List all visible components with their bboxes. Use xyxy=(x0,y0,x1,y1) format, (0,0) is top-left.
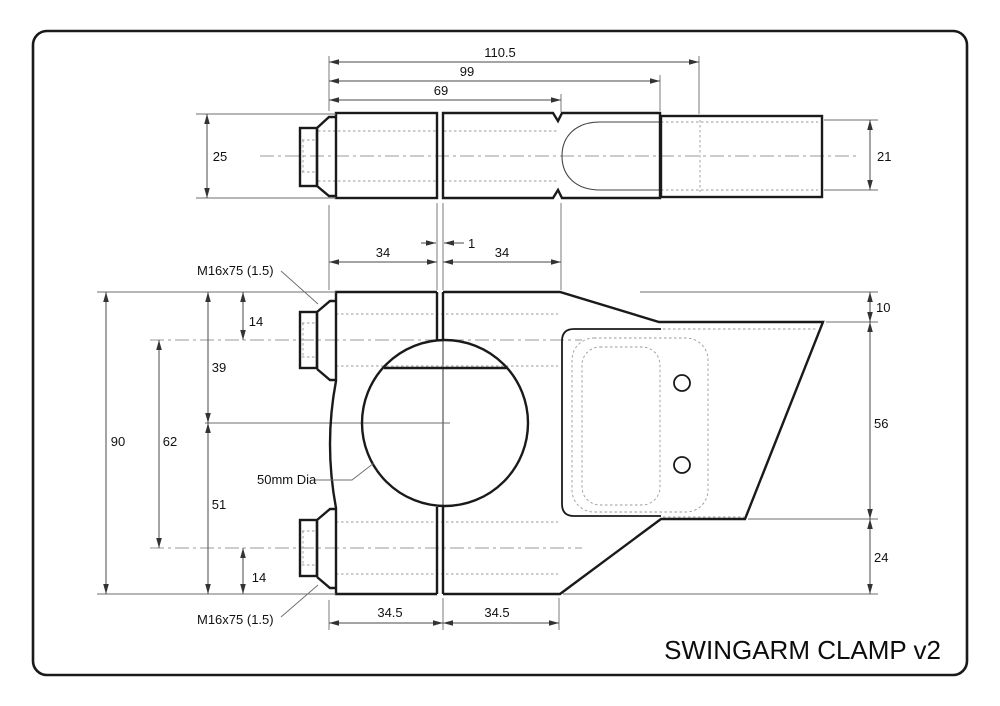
leader-bolt-spec-bottom xyxy=(281,585,318,617)
bracket-hidden-pocket-inner xyxy=(582,347,660,505)
dim-overall-length: 110.5 xyxy=(484,45,516,60)
dim-left-half-width: 34.5 xyxy=(377,605,402,620)
drawing-frame xyxy=(33,31,967,675)
dim-right-half: 34 xyxy=(495,245,509,260)
front-view xyxy=(150,292,823,594)
clamp-left-half-front-view xyxy=(330,292,437,594)
clamp-right-half-front-view xyxy=(443,292,823,594)
dim-bracket-top-offset: 10 xyxy=(876,300,890,315)
clamp-left-half-top-view xyxy=(336,113,437,198)
dimension-text: 110.5 99 69 25 21 34 34 1 90 62 39 51 14… xyxy=(111,45,892,627)
bracket-plate xyxy=(562,329,661,516)
dim-shaft-diameter: 21 xyxy=(877,149,891,164)
dim-body-width: 25 xyxy=(213,149,227,164)
dim-left-half: 34 xyxy=(376,245,390,260)
label-bore-diameter: 50mm Dia xyxy=(257,472,317,487)
bracket-hole-upper xyxy=(674,375,690,391)
shaft-outline xyxy=(661,116,822,197)
dim-center-to-bottom: 51 xyxy=(212,497,226,512)
dim-top-to-bolt: 14 xyxy=(249,314,263,329)
dim-bracket-bottom-offset: 24 xyxy=(874,550,888,565)
drawing-sheet: 110.5 99 69 25 21 34 34 1 90 62 39 51 14… xyxy=(0,0,1000,706)
dim-bolt-spacing: 62 xyxy=(163,434,177,449)
drawing-title: SWINGARM CLAMP v2 xyxy=(664,635,941,665)
bracket-hole-lower xyxy=(674,457,690,473)
dim-top-to-center: 39 xyxy=(212,360,226,375)
lower-bolt-flange xyxy=(317,509,336,588)
upper-bolt-flange xyxy=(317,301,336,380)
dim-bolt-to-bottom: 14 xyxy=(252,570,266,585)
dim-clamp-length: 99 xyxy=(460,64,474,79)
dim-split-gap: 1 xyxy=(468,236,475,251)
clamp-right-half-top-view xyxy=(443,113,660,198)
leader-bore-diameter xyxy=(313,463,374,480)
bracket-hidden-pocket-outer xyxy=(572,338,708,512)
dim-total-height: 90 xyxy=(111,434,125,449)
dim-right-half-width: 34.5 xyxy=(484,605,509,620)
cad-drawing: 110.5 99 69 25 21 34 34 1 90 62 39 51 14… xyxy=(0,0,1000,706)
label-bolt-spec-bottom: M16x75 (1.5) xyxy=(197,612,274,627)
dim-slot-depth: 69 xyxy=(434,83,448,98)
dimension-annotations xyxy=(97,56,878,630)
bolt-flange-top-view xyxy=(317,117,336,196)
label-bolt-spec-top: M16x75 (1.5) xyxy=(197,263,274,278)
leader-bolt-spec-top xyxy=(281,271,318,304)
top-view xyxy=(260,113,858,198)
dim-bracket-height: 56 xyxy=(874,416,888,431)
